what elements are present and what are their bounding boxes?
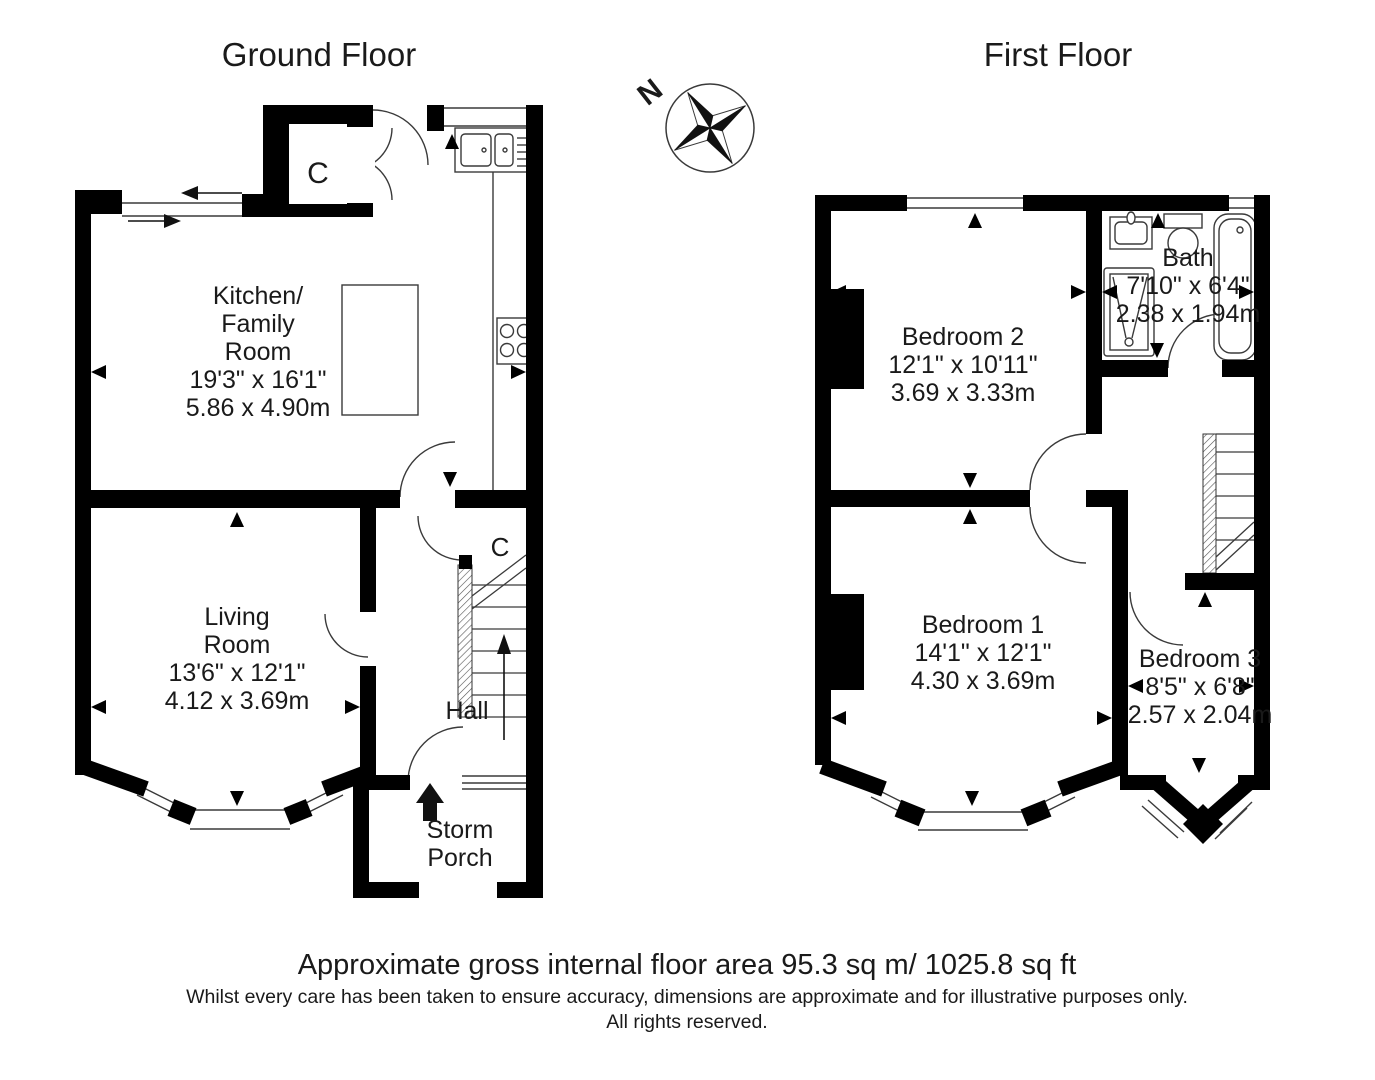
bedroom3-name: Bedroom 3 [1139,645,1261,673]
chimney-breast [831,594,864,690]
kitchen-island [342,285,418,415]
wall [1086,360,1168,377]
living-name-2: Room [204,631,271,659]
living-name-1: Living [204,603,269,631]
shower-drain [1125,338,1133,346]
stairs-up-arrow [497,634,511,740]
wall [815,195,907,211]
wall [497,882,543,898]
side-passage-arrows [128,186,242,228]
toilet-cistern [1164,214,1202,228]
bathtub-tap [1237,227,1243,233]
wall [360,666,376,775]
kitchen-dims-imperial: 19'3" x 16'1" [189,366,326,394]
bedroom3-label: Bedroom 3 8'5" x 6'8" 2.57 x 2.04m [1128,645,1273,729]
bay-wall [82,766,146,789]
wall [1023,195,1229,211]
wall [526,505,543,898]
kitchen-name-2: Family [221,310,295,338]
bedroom1-name: Bedroom 1 [922,611,1044,639]
living-dims-imperial: 13'6" x 12'1" [168,659,305,687]
bath-sink-basin [1115,222,1147,244]
bedroom1-label: Bedroom 1 14'1" x 12'1" 4.30 x 3.69m [911,611,1056,695]
bay-cap [168,799,197,825]
kitchen-label: Kitchen/ Family Room 19'3" x 16'1" 5.86 … [186,282,331,422]
wall [526,105,543,505]
cupboard-stairs-label: C [491,532,510,562]
bay-cap [284,799,313,825]
porch-name-2: Porch [427,844,492,872]
bedroom1-door-arc [1030,507,1086,563]
living-room-label: Living Room 13'6" x 12'1" 4.12 x 3.69m [165,603,310,715]
wall [353,773,369,898]
wall [75,190,91,775]
hob-ring [501,325,514,338]
bedroom1-dims-metric: 4.30 x 3.69m [911,667,1056,695]
bedroom3-dims-metric: 2.57 x 2.04m [1128,701,1273,729]
ground-floor-plan: Ground Floor C C Kitchen/ Family Room 19… [75,36,543,898]
wall [427,105,444,131]
bedroom2-door-arc [1030,434,1086,490]
first-stairs [1203,434,1254,573]
porch-hall-door-arc [408,727,463,782]
bedroom2-dims-imperial: 12'1" x 10'11" [888,351,1037,379]
bath-name: Bath [1162,244,1213,272]
wall [1112,507,1128,775]
porch-name-1: Storm [427,816,494,844]
sink-drain-left [482,148,486,152]
first-floor-plan: First Floor Bedroom 2 12'1" x 10'11" 3.6… [815,36,1272,844]
bay-wall [822,766,884,789]
kitchen-name-3: Room [225,338,292,366]
bedroom1-dims-imperial: 14'1" x 12'1" [914,639,1051,667]
kitchen-hall-door-arc [400,442,455,497]
floor-area-text: Approximate gross internal floor area 95… [298,949,1077,981]
chimney-breast [831,289,864,389]
bedroom2-label: Bedroom 2 12'1" x 10'11" 3.69 x 3.33m [888,323,1037,407]
bath-dims-metric: 2.38 x 1.94m [1116,300,1261,328]
wall [1185,573,1270,590]
sink-drain-right [503,148,507,152]
bath-dims-imperial: 7'10" x 6'4" [1126,272,1249,300]
cupboard-top [289,124,375,204]
wall [1086,211,1102,377]
footer: Approximate gross internal floor area 95… [186,949,1188,1033]
rights-text: All rights reserved. [606,1011,767,1033]
compass: N [631,70,767,186]
floorplan-page: Ground Floor C C Kitchen/ Family Room 19… [0,0,1375,1080]
wall [360,508,376,612]
wall [1086,377,1102,434]
wall [831,490,1030,507]
floorplan-drawing: Ground Floor C C Kitchen/ Family Room 19… [0,0,1375,1080]
hall-label: Hall [445,697,488,725]
bay-wall [1060,768,1118,789]
wall [815,195,831,765]
living-room-door-arc [325,614,368,657]
wall [90,490,400,508]
wall [75,190,122,214]
stairs-cupboard-door-arc [418,516,462,560]
cupboard-top-label: C [307,157,329,190]
compass-north-label: N [631,73,668,112]
wall [1086,490,1128,507]
storm-porch-label: Storm Porch [427,816,494,872]
ground-floor-title: Ground Floor [222,36,416,73]
bedroom2-name: Bedroom 2 [902,323,1024,351]
bay-cap [1021,800,1052,826]
hob-ring [501,344,514,357]
bedroom3-door-arc [1130,592,1183,645]
wall [1222,360,1270,377]
disclaimer-text: Whilst every care has been taken to ensu… [186,986,1188,1008]
kitchen-name-1: Kitchen/ [213,282,303,310]
bath-sink-tap [1127,212,1135,224]
wall [459,555,472,569]
bay-cap [895,800,926,826]
living-dims-metric: 4.12 x 3.69m [165,687,310,715]
ground-walls [75,105,543,898]
bedroom3-dims-imperial: 8'5" x 6'8" [1145,673,1254,701]
bedroom2-dims-metric: 3.69 x 3.33m [891,379,1036,407]
compass-star [652,70,768,186]
kitchen-dims-metric: 5.86 x 4.90m [186,394,331,422]
wall [353,882,419,898]
first-floor-title: First Floor [984,36,1133,73]
